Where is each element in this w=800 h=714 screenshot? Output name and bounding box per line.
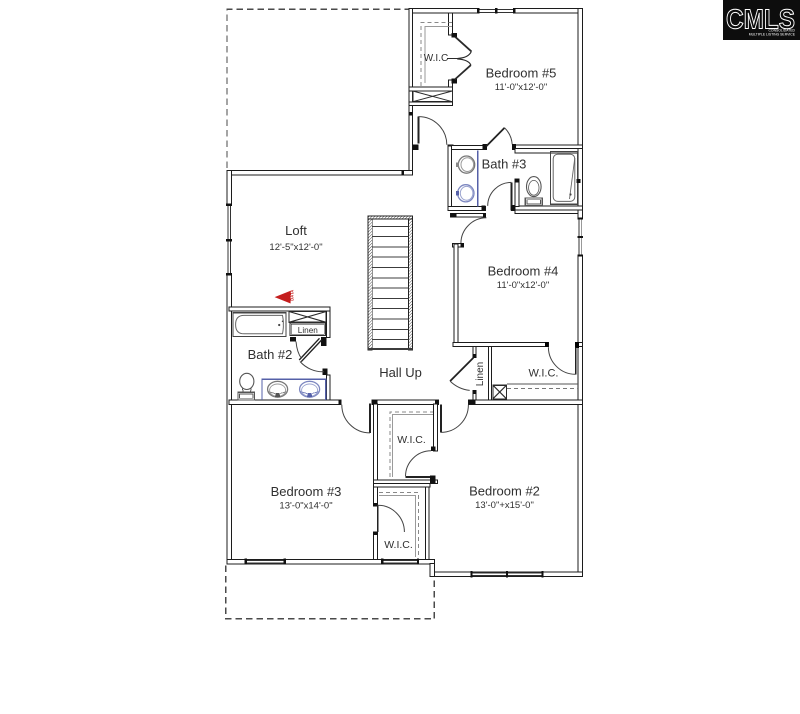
svg-text:W.I.C.: W.I.C. — [397, 434, 426, 446]
svg-text:W.I.C.: W.I.C. — [384, 539, 413, 551]
svg-text:Bedroom #5: Bedroom #5 — [486, 66, 557, 81]
svg-text:11'-0"x12'-0": 11'-0"x12'-0" — [497, 280, 549, 291]
svg-text:Linen: Linen — [475, 362, 486, 386]
svg-text:MULTIPLE LISTING SERVICE: MULTIPLE LISTING SERVICE — [749, 33, 796, 37]
svg-text:Bath #2: Bath #2 — [248, 347, 293, 362]
svg-text:Bedroom #3: Bedroom #3 — [271, 484, 342, 499]
svg-text:12'-5"x12'-0": 12'-5"x12'-0" — [269, 242, 322, 253]
svg-text:Linen: Linen — [298, 326, 318, 335]
svg-text:W.I.C.: W.I.C. — [529, 368, 559, 380]
svg-text:Bath #3: Bath #3 — [482, 157, 527, 172]
svg-text:13'-0"x14'-0": 13'-0"x14'-0" — [279, 501, 332, 512]
svg-text:13'-0"+x15'-0": 13'-0"+x15'-0" — [475, 500, 534, 511]
svg-text:Hall Up: Hall Up — [379, 365, 422, 380]
svg-text:Bedroom #4: Bedroom #4 — [488, 264, 559, 279]
svg-text:Bedroom #2: Bedroom #2 — [469, 484, 540, 499]
svg-text:11'-0"x12'-0": 11'-0"x12'-0" — [495, 82, 547, 93]
svg-text:W.I.C: W.I.C — [424, 53, 448, 64]
svg-text:DATA: DATA — [290, 290, 295, 301]
svg-text:Loft: Loft — [285, 223, 307, 238]
